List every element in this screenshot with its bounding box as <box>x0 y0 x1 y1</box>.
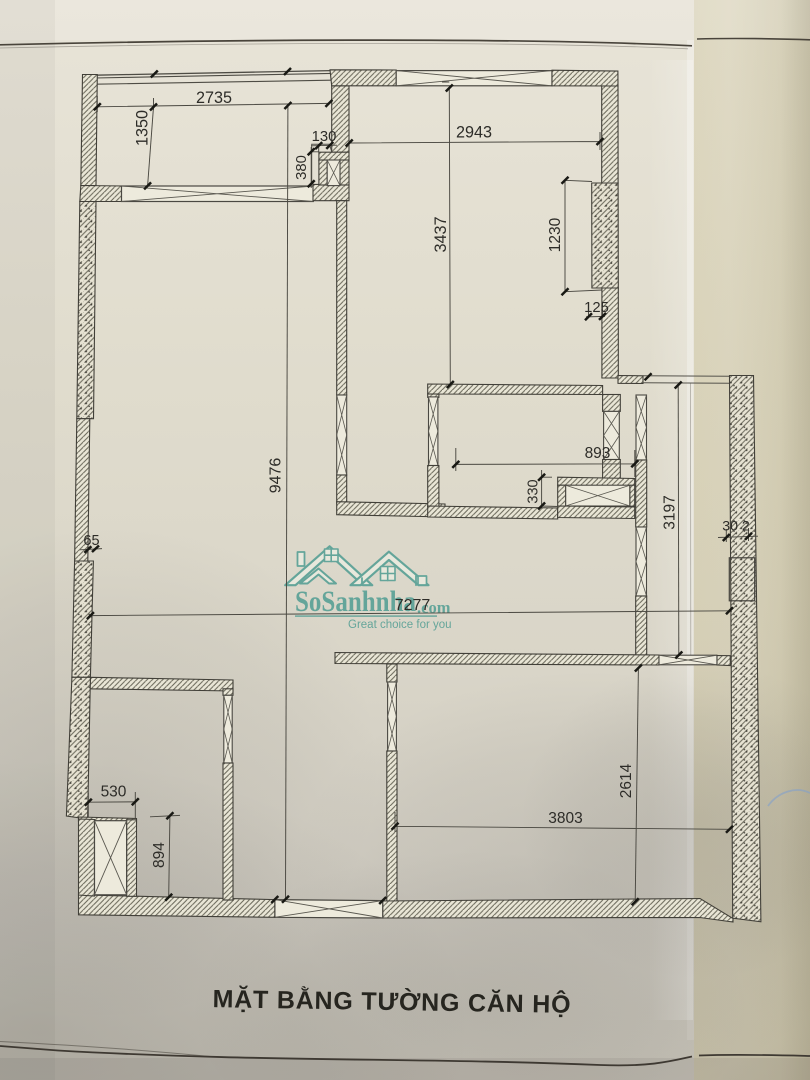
svg-text:3803: 3803 <box>548 810 582 827</box>
svg-text:9476: 9476 <box>268 458 285 494</box>
svg-text:130: 130 <box>312 129 337 145</box>
svg-text:2943: 2943 <box>456 124 492 142</box>
svg-text:65: 65 <box>83 533 99 549</box>
svg-text:7277: 7277 <box>395 597 431 614</box>
svg-text:893: 893 <box>585 445 611 462</box>
svg-text:1230: 1230 <box>547 217 564 252</box>
svg-text:3437: 3437 <box>432 216 450 252</box>
svg-text:2614: 2614 <box>618 763 635 798</box>
svg-text:2735: 2735 <box>196 89 232 107</box>
svg-text:3197: 3197 <box>662 495 679 529</box>
svg-text:530: 530 <box>101 784 127 801</box>
svg-text:330: 330 <box>526 479 542 503</box>
svg-text:1350: 1350 <box>134 110 152 146</box>
svg-text:30 2: 30 2 <box>722 519 750 535</box>
svg-text:380: 380 <box>294 155 310 180</box>
svg-text:125: 125 <box>584 300 609 316</box>
svg-text:Great choice for you: Great choice for you <box>348 619 452 631</box>
svg-text:894: 894 <box>151 842 168 868</box>
